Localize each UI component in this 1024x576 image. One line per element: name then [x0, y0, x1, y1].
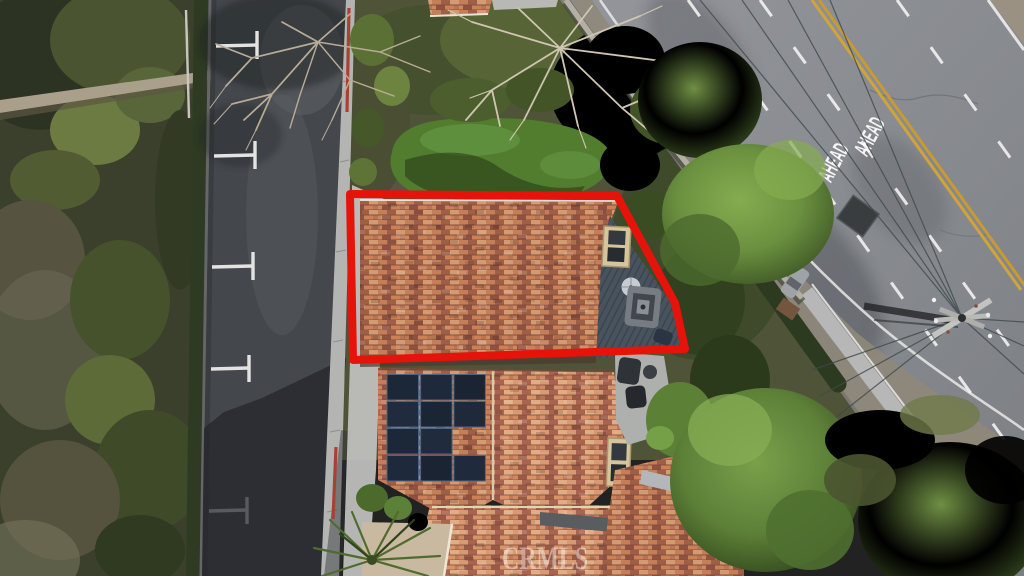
crmls-watermark: CRMLS [502, 541, 588, 576]
hillside-left [0, 0, 214, 576]
red-curb-top [347, 8, 349, 112]
conifer-top [638, 42, 762, 158]
street-hedge [193, 0, 201, 576]
aerial-photo: AHEAD AHEAD [0, 0, 1024, 576]
dormer-skylight-1 [602, 226, 631, 267]
courtyard [362, 522, 452, 576]
aerial-photo-canvas: AHEAD AHEAD [0, 0, 1024, 576]
